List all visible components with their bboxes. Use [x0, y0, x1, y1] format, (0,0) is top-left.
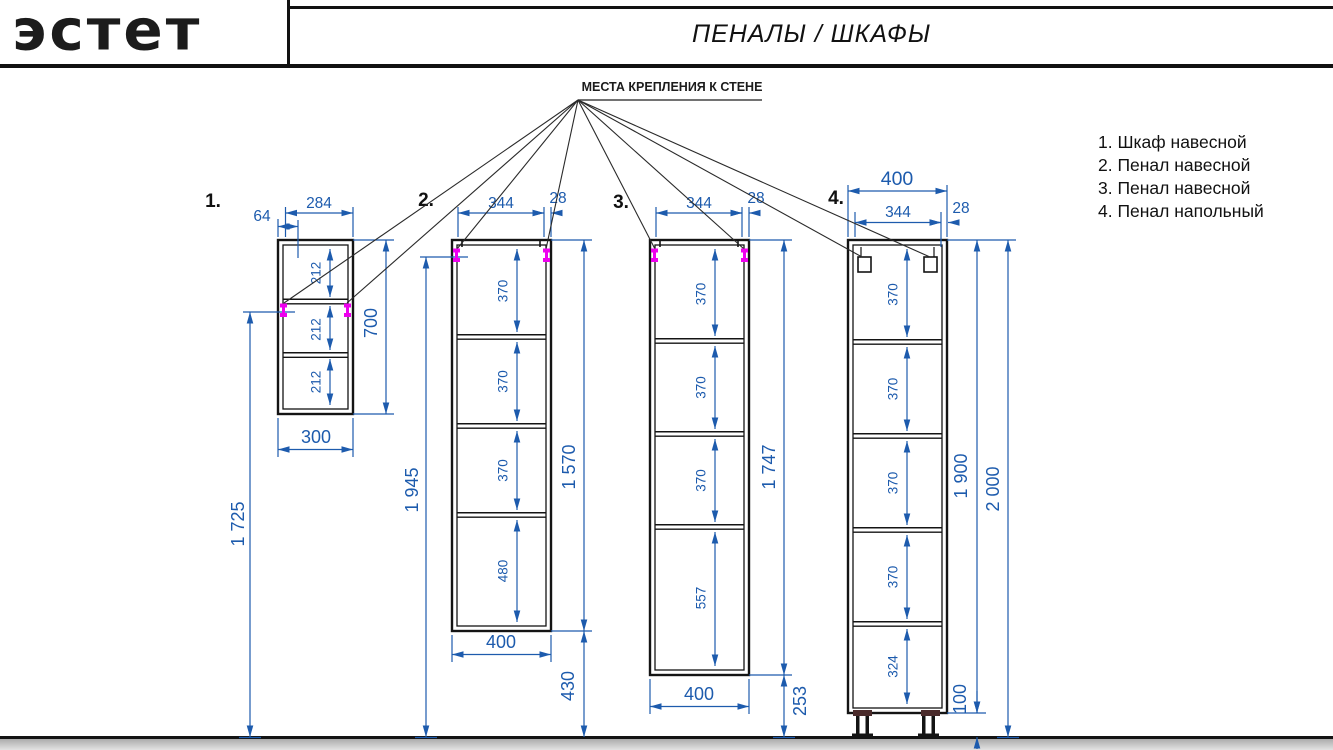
- dim-1725: 1 725: [228, 501, 248, 546]
- dim-100: 100: [950, 684, 970, 714]
- mount-marker-c3-left: [651, 249, 658, 263]
- dim-400-c3: 400: [684, 684, 714, 704]
- cabinet-3-dimensions: 344 28 370 370 370 557 1 747 400 253: [650, 190, 810, 738]
- floor: [0, 738, 1333, 750]
- technical-drawing: МЕСТА КРЕПЛЕНИЯ К СТЕНЕ 1.: [0, 0, 1333, 750]
- cabinet-1-label: 1.: [205, 191, 221, 212]
- dim-253: 253: [790, 686, 810, 716]
- cabinet-2-dimensions: 344 28 370 370 370 480 1 570 1 945 400 4…: [402, 190, 592, 738]
- cabinet-2: 2.: [402, 190, 592, 738]
- dim-344: 344: [488, 195, 514, 212]
- dim-28-c4: 28: [952, 200, 969, 217]
- wall-bracket-left: [858, 257, 871, 272]
- cabinet-1-dimensions: 284 64 212 212 212 700 300 1 725: [228, 195, 394, 738]
- mount-marker-c1-right: [344, 304, 351, 318]
- dim-284: 284: [306, 195, 332, 212]
- cabinet-1: 1.: [205, 191, 394, 738]
- dim-430: 430: [558, 671, 578, 701]
- mount-markers: [280, 249, 748, 318]
- dim-300: 300: [301, 427, 331, 447]
- cabinet-3: 3.: [613, 190, 810, 738]
- mount-marker-c1-left: [280, 304, 287, 318]
- dim-400-c2: 400: [486, 632, 516, 652]
- dim-1900: 1 900: [951, 453, 971, 498]
- dim-344-c4: 344: [885, 204, 911, 221]
- dim-370-c3b: 370: [694, 376, 709, 399]
- dim-370-c3c: 370: [694, 469, 709, 492]
- dim-370-c4c: 370: [886, 472, 901, 495]
- dim-370-c4a: 370: [886, 283, 901, 306]
- dim-370-c4d: 370: [886, 566, 901, 589]
- wall-mount-annotation: МЕСТА КРЕПЛЕНИЯ К СТЕНЕ: [578, 80, 762, 100]
- dim-64: 64: [253, 208, 271, 225]
- cabinet-3-label: 3.: [613, 192, 629, 213]
- dim-370-c: 370: [496, 459, 511, 482]
- mount-marker-c2-left: [453, 249, 460, 263]
- dim-370-c4b: 370: [886, 378, 901, 401]
- cabinet-4-label: 4.: [828, 188, 844, 209]
- cabinet-4: 4.: [828, 168, 1019, 749]
- dim-1945: 1 945: [402, 467, 422, 512]
- dim-212-c: 212: [309, 371, 324, 394]
- dim-370-b: 370: [496, 370, 511, 393]
- dim-700: 700: [361, 308, 381, 338]
- dim-370-c3a: 370: [694, 283, 709, 306]
- dim-324: 324: [886, 655, 901, 678]
- dim-212-b: 212: [309, 318, 324, 341]
- mount-marker-c3-right: [741, 249, 748, 263]
- mount-marker-c2-right: [543, 249, 550, 263]
- wall-mount-label: МЕСТА КРЕПЛЕНИЯ К СТЕНЕ: [582, 80, 763, 94]
- wall-bracket-right: [924, 257, 937, 272]
- dim-400-c4: 400: [881, 168, 914, 190]
- dim-1570: 1 570: [559, 444, 579, 489]
- drawing-sheet: эстет ПЕНАЛЫ / ШКАФЫ 1. Шкаф навесной 2.…: [0, 0, 1333, 750]
- dim-1747: 1 747: [759, 444, 779, 489]
- dim-2000: 2 000: [983, 466, 1003, 511]
- dim-480: 480: [496, 560, 511, 583]
- dim-370-a: 370: [496, 280, 511, 303]
- dim-557: 557: [694, 587, 709, 610]
